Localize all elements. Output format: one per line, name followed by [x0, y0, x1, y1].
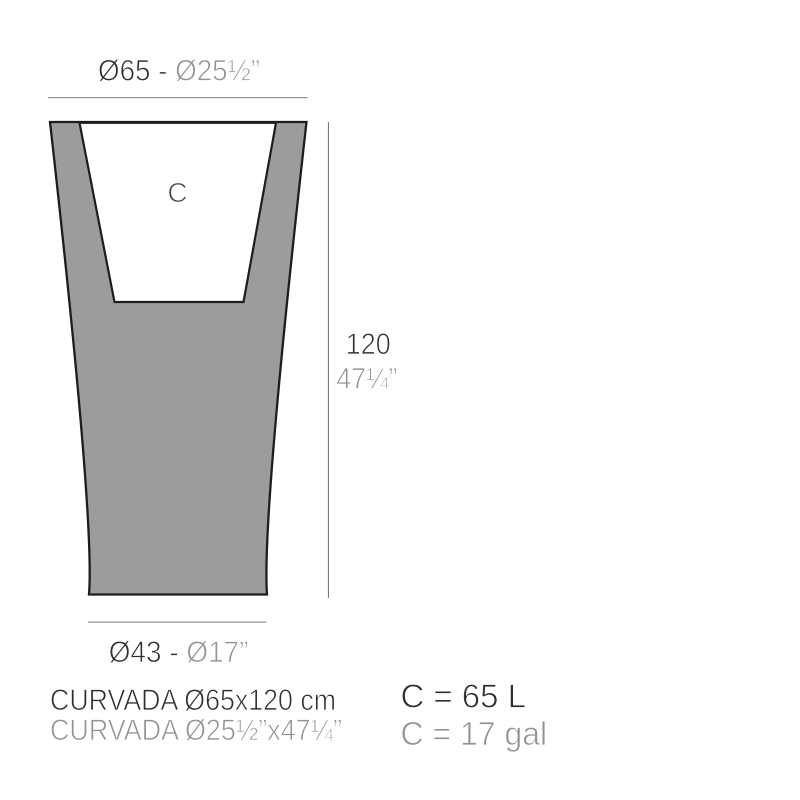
svg-text:CURVADA Ø65x120 cm: CURVADA Ø65x120 cm — [50, 684, 336, 717]
svg-text:C = 17 gal: C = 17 gal — [401, 716, 548, 753]
svg-text:Ø43 - Ø17”: Ø43 - Ø17” — [109, 636, 249, 669]
svg-text:Ø65 - Ø25½”: Ø65 - Ø25½” — [98, 54, 260, 87]
svg-text:C = 65 L: C = 65 L — [401, 678, 526, 715]
svg-text:120: 120 — [346, 328, 391, 361]
svg-text:CURVADA Ø25½”x47¼”: CURVADA Ø25½”x47¼” — [50, 714, 342, 747]
svg-text:C: C — [167, 177, 187, 208]
svg-text:47¼”: 47¼” — [336, 363, 397, 396]
